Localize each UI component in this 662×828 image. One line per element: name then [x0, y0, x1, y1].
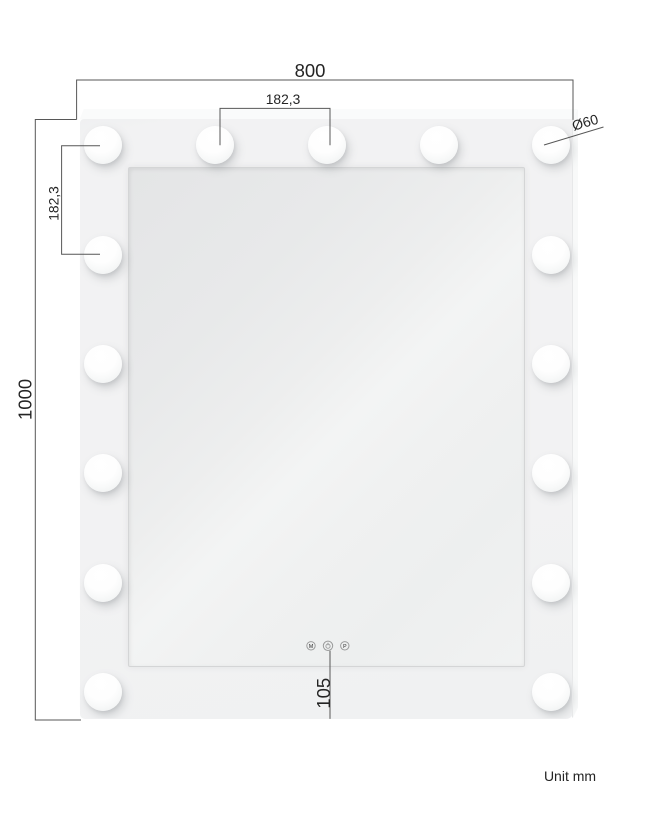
svg-text:M: M: [309, 644, 313, 650]
svg-text:182,3: 182,3: [266, 92, 301, 107]
svg-text:1000: 1000: [15, 379, 36, 420]
svg-text:800: 800: [295, 60, 326, 81]
svg-text:105: 105: [313, 678, 334, 709]
svg-text:Unit mm: Unit mm: [544, 768, 596, 784]
svg-text:P: P: [343, 644, 347, 650]
svg-text:182,3: 182,3: [47, 186, 62, 221]
svg-text:Ø60: Ø60: [570, 111, 600, 134]
